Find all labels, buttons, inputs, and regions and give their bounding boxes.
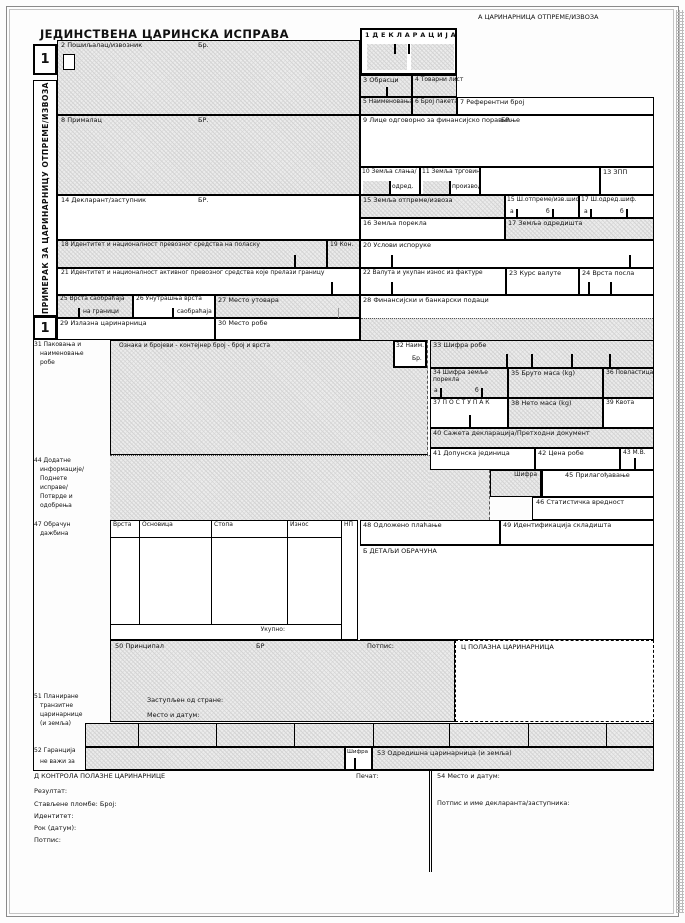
- box-14-label: 14 Декларант/заступник: [61, 197, 146, 204]
- box-24-transaction-type-field[interactable]: 24 Врста посла: [579, 268, 654, 295]
- box-47-label-line: дажбина: [40, 531, 68, 538]
- box-52-code-field[interactable]: Шифра: [345, 747, 372, 770]
- box-2-no-label: Бр.: [198, 42, 209, 49]
- box-33-label: 33 Шифра робе: [433, 342, 486, 349]
- tick-mark: [590, 209, 592, 218]
- box-4-loading-list-field[interactable]: 4 Товарни лист: [412, 75, 457, 97]
- box-3-label: 3 Обрасци: [363, 77, 399, 84]
- box-23-label: 23 Курс валуте: [509, 270, 561, 277]
- tick-mark: [610, 282, 612, 295]
- box-31-description-field[interactable]: Ознака и бројеви - контејнер број - број…: [110, 340, 428, 455]
- total-label: Укупно:: [211, 627, 285, 634]
- tick-mark: [449, 181, 451, 194]
- box-7-label: 7 Референтни број: [460, 99, 524, 106]
- box-17a-label: 17 Ш.одред.шиф.: [581, 197, 637, 204]
- box-21-label: 21 Идентитет и националност активног пре…: [61, 270, 324, 277]
- tick-mark: [516, 209, 518, 218]
- box-13-cap-field[interactable]: 13 ЗПП: [600, 167, 654, 195]
- box-31-label-line: 31 Паковања и: [34, 342, 81, 349]
- box-17-label: 17 Земља одредишта: [508, 220, 582, 227]
- box-17a-b-label: б: [620, 209, 624, 216]
- box-30-goods-location-field[interactable]: 30 Место робе: [215, 318, 360, 340]
- section-b-label: Б ДЕТАЉИ ОБРАЧУНА: [363, 548, 437, 555]
- box-1-declaration[interactable]: 1 Д Е К Л А Р А Ц И Ј А: [360, 28, 457, 75]
- table-header-line: [111, 537, 341, 538]
- box-51-label-line: транзитне: [40, 703, 73, 710]
- box-6-packages-field[interactable]: 6 Број пакета: [412, 97, 457, 115]
- box-5-label: 5 Наименовања: [363, 99, 413, 106]
- box-2-checkbox[interactable]: [63, 54, 75, 70]
- box-32-item-number-field[interactable]: 32 Наим. Бр.: [393, 340, 427, 368]
- box-46-label: 46 Статистичка вредност: [536, 499, 624, 506]
- box-22-label: 22 Валута и укупан износ из фактуре: [363, 270, 483, 277]
- box-46-statistical-value-field[interactable]: 46 Статистичка вредност: [532, 497, 654, 520]
- box-15a-export-code-field[interactable]: 15 Ш.отпреме/изв.шиф. а б: [505, 195, 579, 218]
- tick-mark: [588, 282, 590, 295]
- box-39-quota-field[interactable]: 39 Квота: [603, 398, 654, 428]
- tick-mark: [354, 758, 356, 771]
- identity-label: Идентитет:: [34, 813, 73, 820]
- box-31-label-line: робе: [40, 360, 55, 367]
- transit-divider: [138, 724, 139, 746]
- copy-strip-label: ПРИМЕРАК ЗА ЦАРИНАРНИЦУ ОТПРЕМЕ/ИЗВОЗА: [41, 82, 50, 314]
- box-48-label: 48 Одложено плаћање: [363, 522, 442, 529]
- box-18-transport-identity-field[interactable]: 18 Идентитет и националност превозног ср…: [57, 240, 327, 268]
- box-34-b-label: б: [475, 388, 479, 395]
- box-41-supplementary-units-field[interactable]: 41 Допунска јединица: [430, 448, 535, 470]
- box-47-label-line: 47 Обрачун: [34, 522, 70, 529]
- section-a-label: А ЦАРИНАРНИЦА ОТПРЕМЕ/ИЗВОЗА: [478, 14, 598, 21]
- tick-mark: [629, 255, 631, 268]
- box-27-label: 27 Место утовара: [218, 297, 279, 304]
- box-8-no-label: БР.: [198, 117, 208, 124]
- box-44-label-line: исправе/: [40, 485, 68, 492]
- scan-edge-texture: [676, 10, 684, 913]
- section-c-label: Ц ПОЛАЗНА ЦАРИНАРНИЦА: [461, 644, 554, 651]
- copy-strip: ПРИМЕРАК ЗА ЦАРИНАРНИЦУ ОТПРЕМЕ/ИЗВОЗА: [33, 80, 57, 316]
- box-53-label: 53 Одредишна царинарница (и земља): [377, 750, 512, 757]
- box-10-code-field[interactable]: [363, 181, 389, 194]
- box-11-sublabel: производ.: [452, 184, 484, 191]
- table-divider: [341, 521, 342, 639]
- box-24-label: 24 Врста посла: [582, 270, 634, 277]
- section-c-departure-office[interactable]: Ц ПОЛАЗНА ЦАРИНАРНИЦА: [455, 640, 654, 722]
- box-36-label: 36 Повластица: [606, 370, 653, 377]
- box-53-destination-office-field[interactable]: 53 Одредишна царинарница (и земља): [372, 747, 654, 770]
- box-44-label-line: Поднете: [40, 476, 67, 483]
- result-label: Резултат:: [34, 788, 67, 795]
- box-52-label: 52 Гаранција: [34, 748, 76, 755]
- box-16-label: 16 Земља порекла: [363, 220, 427, 227]
- box-40-summary-declaration-field[interactable]: 40 Сажета декларација/Претходни документ: [430, 428, 654, 448]
- box-23-exchange-rate-field[interactable]: 23 Курс валуте: [506, 268, 579, 295]
- box-15a-label: 15 Ш.отпреме/изв.шиф.: [507, 197, 583, 204]
- box-27-loading-place-field[interactable]: 27 Место утовара: [215, 295, 360, 318]
- box-30-label: 30 Место робе: [218, 320, 267, 327]
- box-11-code-field[interactable]: [423, 181, 449, 194]
- section-d-top-line: [33, 770, 654, 771]
- form-left-border: [33, 340, 34, 770]
- box-32-sublabel: Бр.: [412, 356, 422, 363]
- box-15a-b-label: б: [546, 209, 550, 216]
- box-44-code-label: Шифра: [514, 472, 537, 479]
- signature-label: Потпис:: [34, 837, 61, 844]
- declarant-signature-label: Потпис и име декларанта/заступника:: [437, 800, 570, 807]
- box-17-destination-country-field[interactable]: 17 Земља одредишта: [505, 218, 654, 240]
- box-7-reference-field[interactable]: 7 Референтни број: [457, 97, 654, 115]
- box-35-gross-mass-field[interactable]: 35 Бруто маса (kg): [508, 368, 603, 398]
- box-36-preference-field[interactable]: 36 Повластица: [603, 368, 654, 398]
- tick-mark: [172, 308, 174, 318]
- copy-number-top: 1: [33, 44, 57, 75]
- box-1-subfield-b[interactable]: [411, 44, 454, 70]
- tick-mark: [634, 458, 636, 470]
- box-10-country-dispatch-field[interactable]: 10 Земља слања/ одред.: [360, 167, 420, 195]
- box-10-sublabel: одред.: [392, 184, 413, 191]
- box-39-label: 39 Квота: [606, 400, 634, 407]
- section-d-label: Д КОНТРОЛА ПОЛАЗНЕ ЦАРИНАРНИЦЕ: [34, 773, 165, 780]
- transit-divider: [216, 724, 217, 746]
- box-44-additional-info-field[interactable]: [110, 455, 430, 520]
- box-34-origin-code-field[interactable]: 34 Шифра земље порекла а б: [430, 368, 508, 398]
- box-47-duties-table[interactable]: Врста Основица Стопа Износ НП Укупно:: [110, 520, 358, 640]
- box-13-label: 13 ЗПП: [603, 169, 627, 176]
- box-45-adjustment-field[interactable]: 45 Прилагођавање: [542, 470, 654, 497]
- box-32-label: 32 Наим.: [396, 343, 424, 350]
- box-17a-destination-code-field[interactable]: 17 Ш.одред.шиф. а б: [579, 195, 654, 218]
- box-51-label-line: 51 Планиране: [34, 694, 79, 701]
- box-26-sublabel: саобраћаја: [177, 309, 212, 316]
- box-1-label: 1 Д Е К Л А Р А Ц И Ј А: [365, 32, 456, 39]
- tick-mark: [609, 354, 611, 368]
- box-44-label-line: одобрења: [40, 503, 72, 510]
- box-38-net-mass-field[interactable]: 38 Нето маса (kg): [508, 398, 603, 428]
- box-48-deferred-payment-field[interactable]: 48 Одложено плаћање: [360, 520, 500, 545]
- box-50-principal-field[interactable]: 50 Принципал БР Потпис: Заступљен од стр…: [110, 640, 455, 722]
- box-16-origin-country-field[interactable]: 16 Земља порекла: [360, 218, 505, 240]
- customs-form-page: ЈЕДИНСТВЕНА ЦАРИНСКА ИСПРАВА А ЦАРИНАРНИ…: [0, 0, 685, 923]
- box-25-label: 25 Врста саобраћаја: [60, 296, 125, 303]
- box-40-label: 40 Сажета декларација/Претходни документ: [433, 430, 590, 437]
- box-31-label-line: наименовање: [40, 351, 84, 358]
- box-26-label: 26 Унутрашња врста: [136, 296, 202, 303]
- tick-mark: [626, 209, 628, 218]
- box-11-trading-country-field[interactable]: 11 Земља трговине/ производ.: [420, 167, 480, 195]
- box-20-delivery-terms-field[interactable]: 20 Услови испоруке: [360, 240, 654, 268]
- form-title: ЈЕДИНСТВЕНА ЦАРИНСКА ИСПРАВА: [40, 27, 289, 41]
- box-10-label: 10 Земља слања/: [362, 169, 417, 176]
- col-header-base: Основица: [142, 522, 173, 529]
- tick-mark: [408, 44, 410, 54]
- section-d-divider: [429, 770, 432, 872]
- box-25-transport-mode-border-field[interactable]: 25 Врста саобраћаја на граници: [57, 295, 133, 318]
- box-44-label-line: 44 Додатне: [34, 458, 71, 465]
- box-51-label-line: (и земља): [40, 721, 71, 728]
- box-51-transit-offices-field[interactable]: [85, 723, 654, 747]
- box-45-label: 45 Прилагођавање: [565, 472, 630, 479]
- box-44-additional-info-field-right[interactable]: [430, 470, 490, 520]
- section-b-accounting-details[interactable]: Б ДЕТАЉИ ОБРАЧУНА: [360, 545, 654, 640]
- box-33-commodity-code-field[interactable]: 33 Шифра робе: [430, 340, 654, 368]
- box-50-no-label: БР: [256, 643, 264, 650]
- box-28-label: 28 Финансијски и банкарски подаци: [363, 297, 489, 304]
- box-38-label: 38 Нето маса (kg): [511, 400, 572, 407]
- box-1-subfield-a[interactable]: [367, 44, 407, 70]
- tick-mark: [469, 415, 471, 428]
- box-3-forms-field[interactable]: 3 Обрасци: [360, 75, 412, 97]
- box-11-label: 11 Земља трговине/: [422, 169, 486, 176]
- box-18-label: 18 Идентитет и националност превозног ср…: [61, 242, 260, 249]
- box-2-consignor-field[interactable]: 2 Пошиљалац/извозник Бр.: [57, 40, 360, 115]
- seals-affixed-label: Стављене пломбе: Број:: [34, 801, 116, 808]
- tick-mark: [552, 209, 554, 218]
- box-34-a-label: а: [434, 388, 438, 395]
- box-28-shaded-area[interactable]: [361, 318, 653, 340]
- box-49-label: 49 Идентификација складишта: [503, 522, 611, 529]
- box-54-label: 54 Место и датум:: [437, 773, 500, 780]
- box-44-label-line: Потврде и: [40, 494, 73, 501]
- box-44-code-field[interactable]: Шифра: [490, 470, 542, 497]
- box-42-label: 42 Цена робе: [538, 450, 584, 457]
- box-29-label: 29 Излазна царинарница: [60, 320, 147, 327]
- box-28-financial-data-field[interactable]: 28 Финансијски и банкарски подаци: [360, 295, 654, 340]
- box-37-procedure-field[interactable]: 37 П О С Т У П А К: [430, 398, 508, 428]
- box-2-label: 2 Пошиљалац/извозник: [61, 42, 142, 49]
- col-header-amount: Износ: [290, 522, 309, 529]
- tick-mark: [506, 354, 508, 368]
- box-14-no-label: БР.: [198, 197, 208, 204]
- col-header-rate: Стопа: [214, 522, 233, 529]
- box-6-label: 6 Број пакета: [415, 99, 458, 106]
- box-17a-a-label: а: [584, 209, 588, 216]
- tick-mark: [481, 388, 483, 398]
- box-43-valuation-method-field[interactable]: 43 М.В.: [620, 448, 654, 470]
- tick-mark: [440, 388, 442, 398]
- tick-mark: [331, 282, 333, 295]
- box-25-sublabel: на граници: [83, 309, 119, 316]
- seal-label: Печат:: [356, 773, 379, 780]
- box-9-financial-party-field[interactable]: 9 Лице одговорно за финансијско поравнањ…: [360, 115, 654, 167]
- box-35-label: 35 Бруто маса (kg): [511, 370, 575, 377]
- transit-divider: [606, 724, 607, 746]
- box-5-items-field[interactable]: 5 Наименовања: [360, 97, 412, 115]
- box-50-signature-label: Потпис:: [367, 643, 394, 650]
- box-42-item-price-field[interactable]: 42 Цена робе: [535, 448, 620, 470]
- tick-mark: [531, 354, 533, 368]
- tick-mark: [338, 308, 339, 318]
- col-header-mp: НП: [344, 522, 353, 529]
- box-37-label: 37 П О С Т У П А К: [433, 400, 490, 407]
- box-12-field[interactable]: [480, 167, 600, 195]
- box-52-sublabel: не важи за: [40, 759, 75, 766]
- copy-number-bottom: 1: [33, 316, 57, 340]
- box-15-label: 15 Земља отпреме/извоза: [363, 197, 452, 204]
- box-49-warehouse-id-field[interactable]: 49 Идентификација складишта: [500, 520, 654, 545]
- box-34-label: 34 Шифра земље порекла: [433, 370, 503, 383]
- tick-mark: [391, 255, 393, 268]
- tick-mark: [389, 181, 391, 194]
- box-8-consignee-field[interactable]: 8 Прималац БР.: [57, 115, 360, 195]
- box-15-export-country-field[interactable]: 15 Земља отпреме/извоза: [360, 195, 505, 218]
- box-52-code-label: Шифра: [347, 749, 368, 755]
- transit-divider: [294, 724, 295, 746]
- box-43-label: 43 М.В.: [623, 450, 646, 457]
- box-19-label: 19 Кон.: [330, 242, 353, 249]
- box-4-label: 4 Товарни лист: [415, 77, 463, 84]
- tick-mark: [571, 354, 573, 368]
- box-8-label: 8 Прималац: [61, 117, 102, 124]
- transit-divider: [373, 724, 374, 746]
- box-31-header: Ознака и бројеви - контејнер број - број…: [119, 343, 270, 350]
- box-52-guarantee-field[interactable]: [85, 747, 345, 770]
- tick-mark: [294, 255, 296, 268]
- deadline-label: Рок (датум):: [34, 825, 76, 832]
- tick-mark: [394, 44, 396, 54]
- transit-divider: [449, 724, 450, 746]
- col-header-type: Врста: [113, 522, 131, 529]
- box-50-place-date-label: Место и датум:: [147, 712, 200, 719]
- tick-mark: [386, 87, 388, 97]
- box-41-label: 41 Допунска јединица: [433, 450, 510, 457]
- transit-divider: [528, 724, 529, 746]
- box-20-label: 20 Услови испоруке: [363, 242, 431, 249]
- tick-mark: [391, 282, 393, 295]
- box-22-currency-amount-field[interactable]: 22 Валута и укупан износ из фактуре: [360, 268, 506, 295]
- table-total-line: [111, 624, 341, 625]
- box-15a-a-label: а: [510, 209, 514, 216]
- box-9-no-label: БР.: [501, 117, 511, 124]
- box-50-label: 50 Принципал: [115, 643, 164, 650]
- box-21-active-transport-field[interactable]: 21 Идентитет и националност активног пре…: [57, 268, 360, 295]
- box-19-container-field[interactable]: 19 Кон.: [327, 240, 360, 268]
- box-51-label-line: царинарнице: [40, 712, 82, 719]
- box-26-inland-transport-mode-field[interactable]: 26 Унутрашња врста саобраћаја: [133, 295, 215, 318]
- box-29-exit-office-field[interactable]: 29 Излазна царинарница: [57, 318, 215, 340]
- box-14-declarant-field[interactable]: 14 Декларант/заступник БР.: [57, 195, 360, 240]
- box-50-represented-label: Заступљен од стране:: [147, 697, 223, 704]
- box-44-label-line: информације/: [40, 467, 84, 474]
- box-9-label: 9 Лице одговорно за финансијско поравнањ…: [363, 117, 520, 124]
- tick-mark: [78, 308, 80, 318]
